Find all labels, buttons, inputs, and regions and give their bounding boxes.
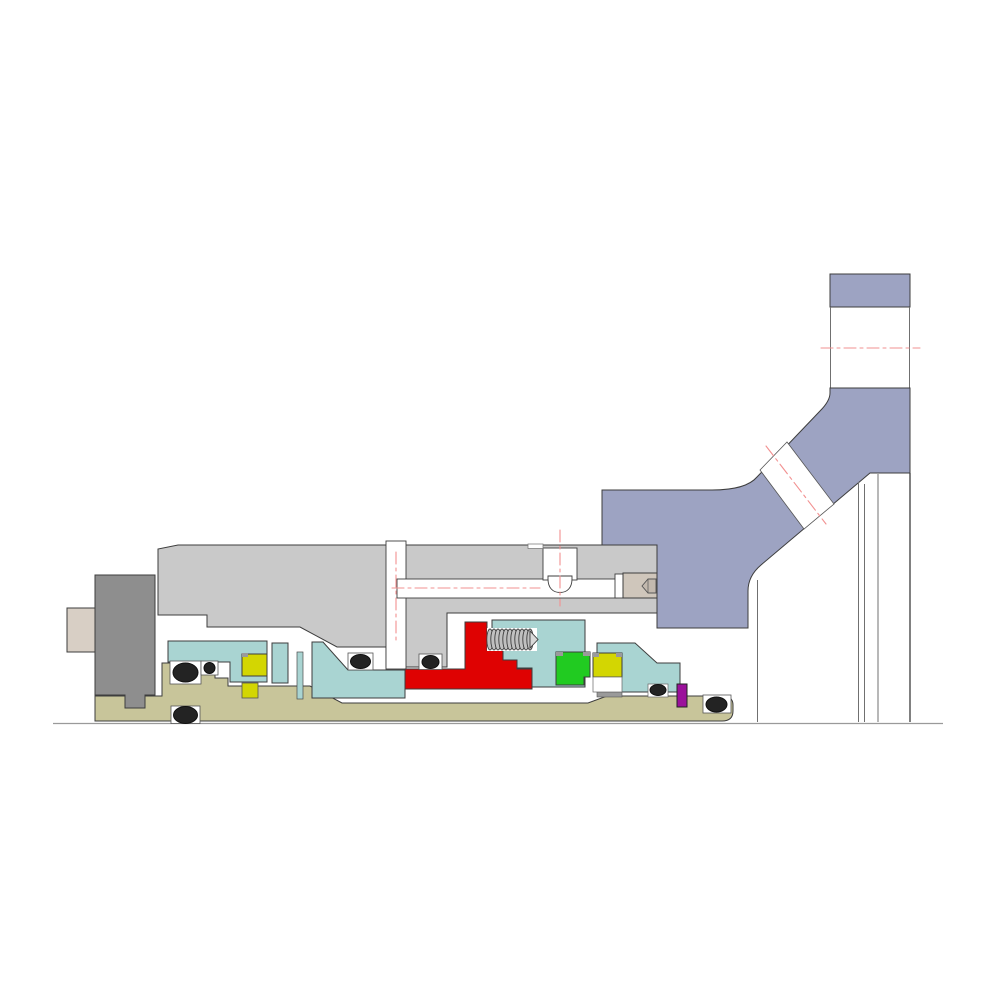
oring bbox=[422, 656, 439, 669]
face-corner-tab bbox=[242, 653, 248, 657]
pump-casing-group bbox=[602, 274, 920, 722]
oring bbox=[351, 655, 371, 669]
oring bbox=[706, 697, 727, 712]
oring bbox=[650, 685, 666, 696]
face-corner-tab bbox=[616, 653, 622, 657]
port-surface-notch bbox=[528, 544, 543, 549]
seal-face-yellow-left bbox=[242, 654, 267, 676]
face-recess-white bbox=[593, 677, 622, 692]
shaft-end bbox=[67, 608, 95, 652]
drive-collar bbox=[95, 575, 155, 708]
spring-group bbox=[487, 628, 538, 651]
face-corner-tab bbox=[593, 653, 599, 657]
oring-bottom-left bbox=[174, 707, 198, 724]
seal-gasket-yellow-left bbox=[242, 683, 258, 698]
stationary-seat bbox=[272, 643, 288, 683]
oring bbox=[173, 663, 198, 682]
anti-rotation-pin bbox=[677, 684, 687, 707]
technical-drawing-canvas bbox=[0, 0, 1000, 1000]
face-corner-tab bbox=[556, 652, 563, 656]
gasket-strip bbox=[597, 692, 622, 697]
face-corner-tab bbox=[583, 652, 590, 656]
sleeve-step-strip bbox=[297, 652, 303, 699]
oring-small bbox=[204, 663, 215, 674]
plug-collar bbox=[615, 574, 623, 598]
nozzle-flange-top bbox=[830, 274, 910, 307]
seal-cross-section-svg bbox=[0, 0, 1000, 1000]
